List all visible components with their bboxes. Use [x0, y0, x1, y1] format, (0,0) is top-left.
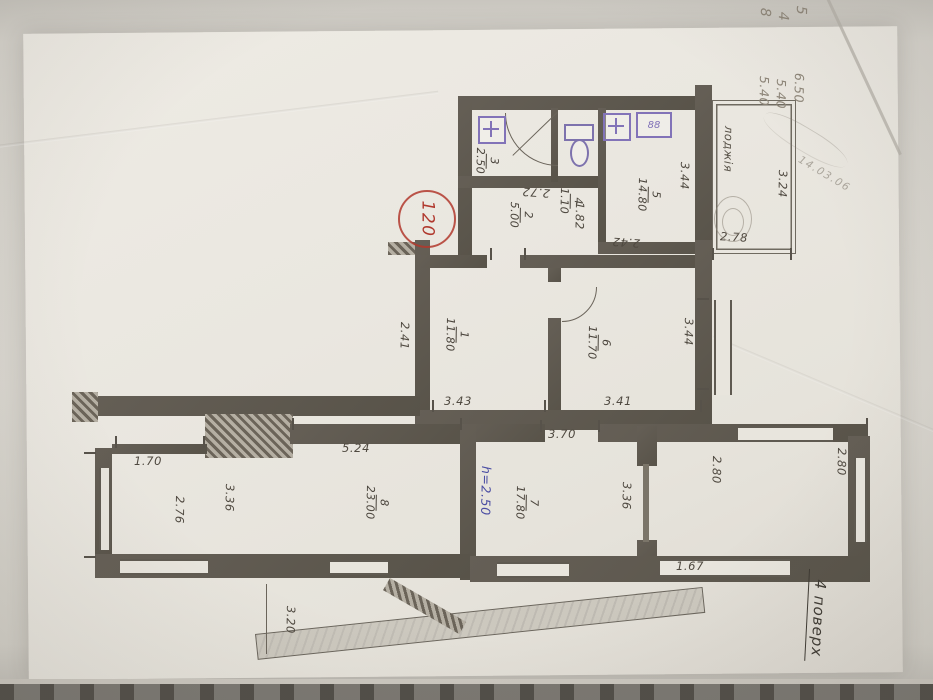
room-number: 8: [376, 495, 390, 511]
wall-segment: [112, 444, 207, 454]
room-area: 11.70: [585, 326, 598, 360]
room-label-5: 5 14.80: [635, 178, 662, 212]
wall-segment: [72, 396, 420, 416]
pencil-total: 6.50: [792, 73, 805, 103]
wall-hatch-end: [72, 392, 98, 422]
wall-thin: [643, 464, 649, 542]
dim-room1-width: 2.41: [398, 322, 410, 350]
room-area: 11.80: [443, 318, 456, 352]
room-number: 6: [598, 335, 612, 351]
dim-tick: [700, 400, 702, 412]
room-area: 14.80: [635, 178, 648, 212]
dim-room8-width: 3.36: [223, 484, 235, 512]
wall-segment: [465, 424, 545, 442]
wall-segment: [695, 85, 712, 257]
room-area: 5.00: [507, 202, 520, 229]
dim-tick: [203, 436, 205, 448]
wall-segment: [418, 255, 487, 268]
room-label-6: 6 11.70: [585, 326, 612, 360]
pencil-digit: 4: [776, 12, 790, 22]
stove-icon: 88: [636, 112, 672, 138]
pencil-digit: 5: [794, 6, 808, 16]
wall-segment: [520, 255, 712, 268]
shaft-lines: [714, 300, 732, 395]
dim-tick: [115, 436, 117, 448]
window: [99, 468, 111, 550]
wall-pillar: [637, 426, 657, 466]
dim-tick: [432, 400, 434, 412]
room-label-2: 2 5.00: [507, 202, 534, 229]
dim-room8-top: 5.24: [342, 443, 370, 455]
window: [330, 560, 388, 575]
dim-right-room-width: 2.80: [710, 456, 722, 484]
dim-bath-width: 2.72: [522, 185, 551, 198]
dim-kitchen-width: 2.42: [612, 235, 641, 248]
dim-tick: [598, 420, 600, 432]
stove-label: 88: [648, 120, 661, 131]
dim-room7-width: 3.36: [620, 482, 632, 510]
room-number: 2: [520, 207, 534, 223]
dim-tick: [866, 418, 868, 430]
wall-segment: [458, 96, 712, 110]
wall-segment: [548, 268, 561, 282]
dim-bottom-right: 1.67: [676, 561, 704, 573]
dim-room1-length: 3.43: [444, 396, 472, 408]
dim-loggia-length: 3.24: [776, 170, 788, 198]
cross-line-icon: [483, 128, 499, 130]
pencil-digit: 8: [758, 8, 772, 18]
pencil-total: 5.40: [757, 76, 770, 106]
dim-tick: [540, 420, 542, 432]
dim-right-room-side: 2.80: [835, 448, 847, 476]
stamp-number: 120: [417, 201, 437, 238]
room-area: 17.80: [513, 486, 526, 520]
stair-scribble: [722, 208, 744, 236]
window: [497, 562, 569, 578]
dim-tick: [712, 248, 714, 260]
room-label-3: 3 2.50: [473, 148, 500, 175]
vent-cross-icon: [603, 113, 631, 141]
wall-segment: [695, 240, 712, 422]
dim-tick: [84, 556, 96, 558]
photo-bottom-strip: [0, 684, 933, 700]
dim-tick: [490, 248, 492, 260]
room-number: 7: [526, 495, 540, 511]
cross-line-icon: [608, 125, 624, 127]
dim-room8-side: 2.76: [173, 496, 185, 524]
dim-tick: [790, 248, 792, 260]
pencil-total: 5.40: [774, 79, 787, 109]
room-label-8: 8 23.00: [363, 486, 390, 520]
wall-segment: [290, 424, 465, 444]
stamp-circle: 120: [398, 190, 456, 248]
dim-tick: [292, 418, 294, 430]
dim-kitchen-length: 3.44: [678, 162, 690, 190]
dim-room7-top: 3.70: [548, 429, 576, 441]
dim-tick: [697, 298, 709, 300]
floor-plan-photo: 88 3 2.50 4 1.10 2 5.00 5 14.80 2.72 1.8…: [0, 0, 933, 700]
dim-hall-width: 1.82: [573, 202, 585, 230]
dim-tick: [544, 400, 546, 412]
dim-room6-length: 3.41: [604, 396, 632, 408]
wall-segment: [548, 318, 561, 418]
window: [738, 426, 833, 442]
room-number: 1: [456, 327, 470, 343]
dim-tick: [460, 418, 462, 430]
window: [120, 559, 208, 575]
room-area: 1.10: [557, 188, 570, 215]
dim-niche: 1.70: [134, 456, 162, 468]
room-area: 2.50: [473, 148, 486, 175]
wall-pillar: [205, 414, 293, 458]
loggia-label: лоджія: [722, 126, 734, 173]
dim-tick: [697, 388, 709, 390]
dimension-line: [266, 584, 267, 654]
dim-tick: [84, 452, 96, 454]
dim-tick: [524, 248, 526, 260]
dim-balcony-width: 3.20: [284, 606, 296, 634]
dim-room6-width: 3.44: [682, 318, 694, 346]
room-label-7: 7 17.80: [513, 486, 540, 520]
height-note: h=2.50: [479, 466, 492, 516]
toilet-bowl-icon: [570, 139, 589, 167]
room-label-1: 1 11.80: [443, 318, 470, 352]
room-number: 5: [648, 187, 662, 203]
room-number: 3: [486, 153, 500, 169]
room-area: 23.00: [363, 486, 376, 520]
vent-cross-icon: [478, 116, 506, 144]
window: [854, 458, 867, 542]
